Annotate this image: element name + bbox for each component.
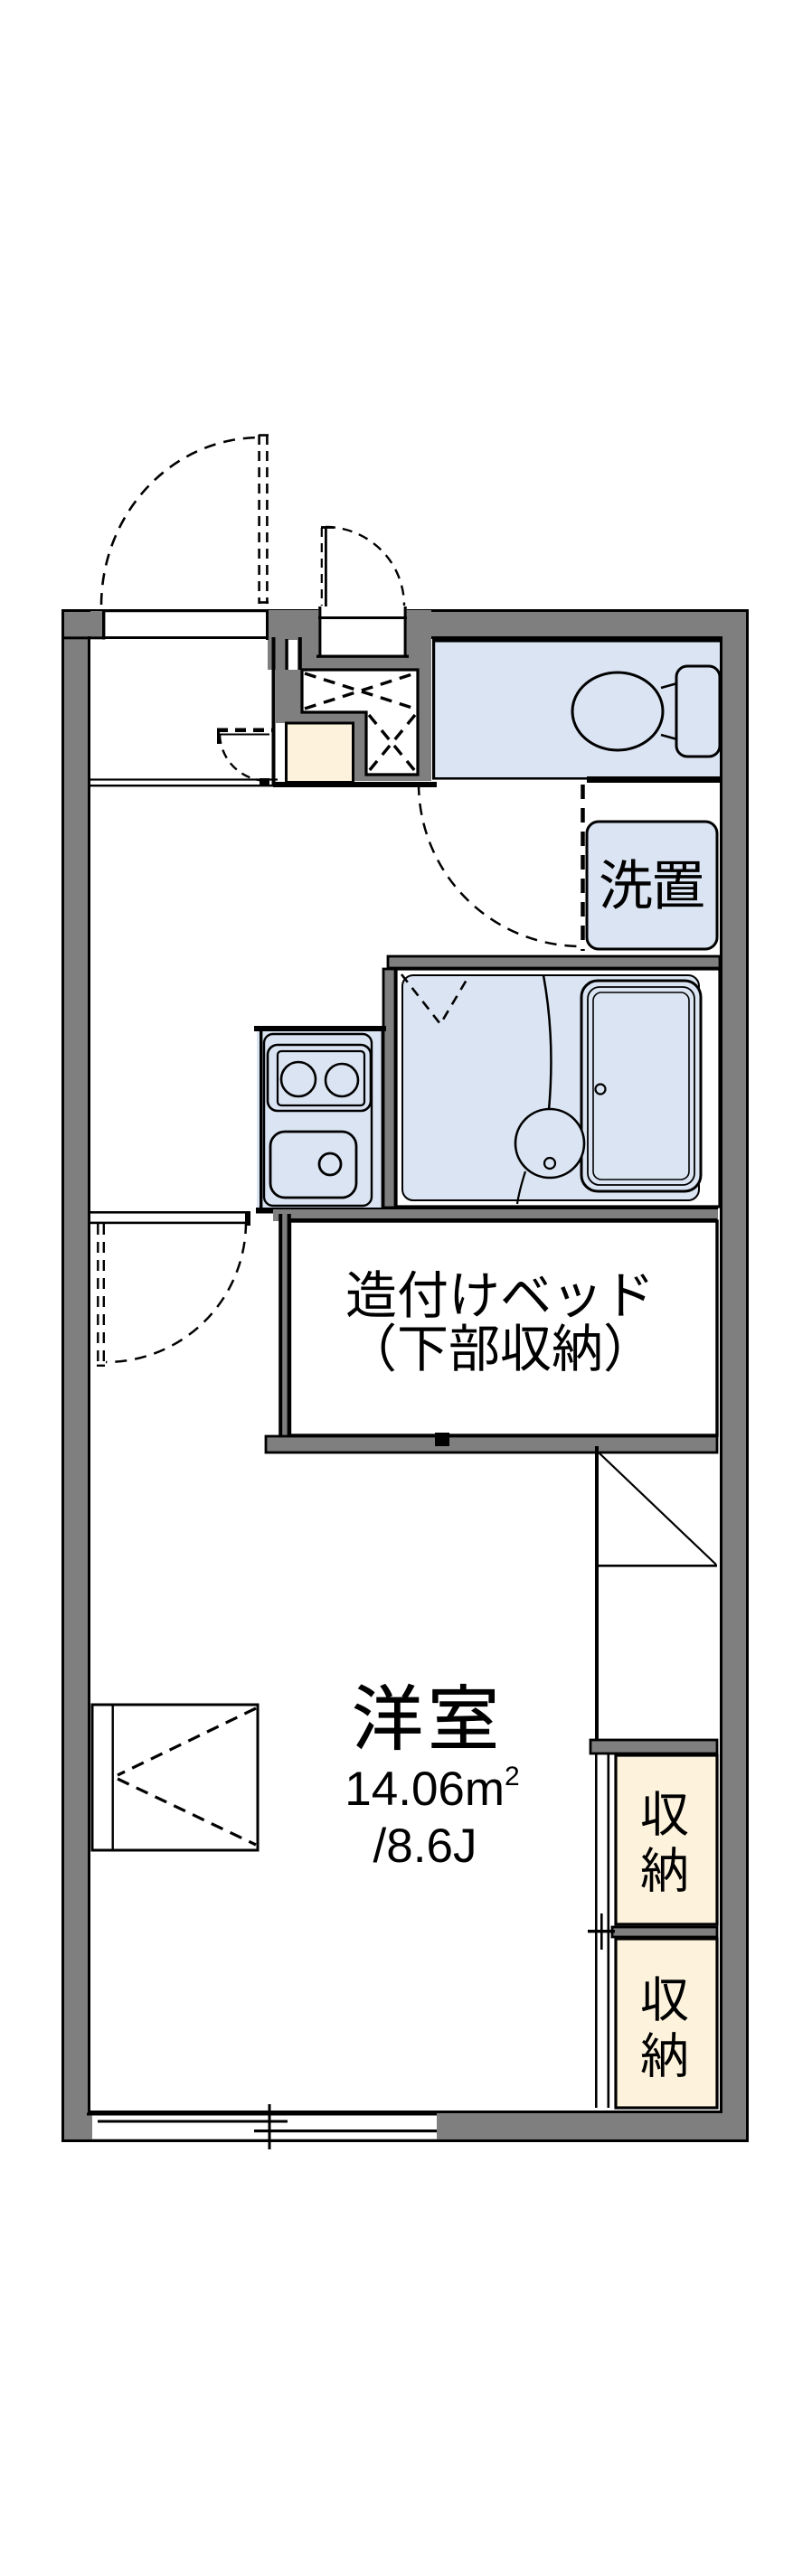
svg-text:/8.6J: /8.6J	[373, 1819, 477, 1873]
svg-text:14.06m2: 14.06m2	[345, 1762, 519, 1816]
